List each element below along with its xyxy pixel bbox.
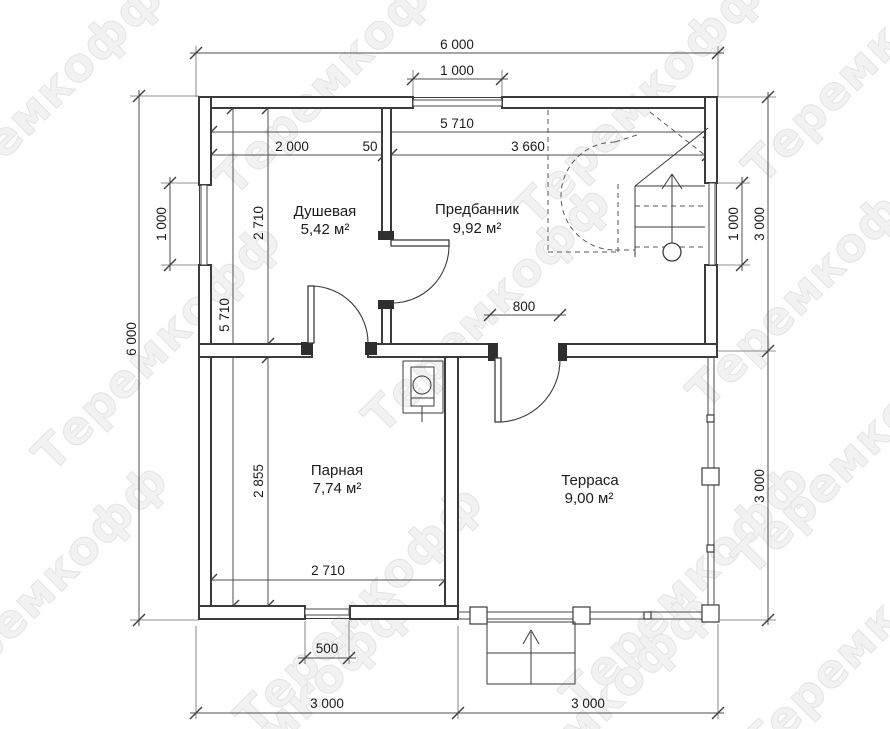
railing-baluster bbox=[644, 612, 651, 619]
room-shower-area: 5,42 м² bbox=[301, 221, 350, 238]
dim-steam-window: 500 bbox=[316, 641, 339, 656]
dim-terrace-door: 800 bbox=[513, 299, 536, 314]
dim-inner-height: 5 710 bbox=[217, 298, 232, 332]
room-hall-area: 9,92 м² bbox=[453, 220, 502, 237]
room-steam-name: Парная bbox=[311, 462, 363, 479]
dim-bottom-right: 3 000 bbox=[571, 696, 605, 711]
room-steam-area: 7,74 м² bbox=[313, 480, 362, 497]
partition-upper bbox=[382, 108, 391, 232]
window-north bbox=[413, 100, 502, 106]
room-hall-name: Предбанник bbox=[435, 201, 519, 218]
wall-east-upper bbox=[705, 97, 717, 183]
door-swing-steam bbox=[311, 286, 368, 343]
floor-plan: Теремкофф Теремкофф Теремкофф Теремкофф … bbox=[0, 0, 890, 729]
door-jamb bbox=[378, 300, 394, 309]
dim-gap: 50 bbox=[362, 139, 377, 154]
dim-right-top: 3 000 bbox=[752, 207, 767, 241]
room-terrace-name: Терраса bbox=[561, 472, 619, 489]
dim-total-height: 6 000 bbox=[124, 322, 139, 356]
wall-steam-east bbox=[445, 357, 458, 606]
door-jamb bbox=[301, 342, 313, 355]
walls bbox=[199, 97, 717, 619]
dim-steam-width: 2 710 bbox=[311, 563, 345, 578]
wall-north-left bbox=[199, 97, 413, 108]
door-jamb bbox=[558, 343, 567, 361]
window-steam-south bbox=[305, 609, 349, 615]
wall-south-right bbox=[350, 606, 458, 619]
dim-steam-height: 2 855 bbox=[251, 464, 266, 498]
room-terrace-area: 9,00 м² bbox=[565, 490, 614, 507]
door-leaf-terrace bbox=[495, 358, 501, 422]
wall-west-lower bbox=[199, 265, 211, 619]
railing-post bbox=[702, 468, 719, 485]
stairs-newel-post bbox=[663, 243, 681, 261]
dim-inner-width: 5 710 bbox=[440, 116, 474, 131]
door-leaf-steam bbox=[308, 286, 314, 343]
wall-west-upper bbox=[199, 97, 211, 185]
dim-bottom-left: 3 000 bbox=[310, 696, 344, 711]
door-swing-hall bbox=[392, 246, 449, 303]
watermark-text: Теремкофф bbox=[0, 0, 174, 239]
watermark-text: Теремкофф bbox=[0, 452, 179, 722]
dim-hall-width: 3 660 bbox=[511, 139, 545, 154]
dim-shower-height: 2 710 bbox=[251, 206, 266, 240]
watermark-text: Теремкофф bbox=[504, 0, 774, 236]
wall-middle-b bbox=[368, 344, 497, 357]
room-shower-name: Душевая bbox=[294, 203, 357, 220]
dim-window-left: 1 000 bbox=[154, 207, 169, 241]
dim-shower-width: 2 000 bbox=[275, 139, 309, 154]
railing-baluster bbox=[707, 545, 714, 552]
dim-total-width: 6 000 bbox=[440, 37, 474, 52]
window-west bbox=[201, 185, 207, 265]
wall-south-left bbox=[199, 606, 305, 619]
railing-baluster bbox=[707, 415, 714, 422]
door-swing-terrace bbox=[498, 360, 560, 422]
railing-post bbox=[573, 607, 590, 624]
dim-right-bottom: 3 000 bbox=[752, 469, 767, 503]
door-jamb bbox=[365, 342, 377, 355]
window-east bbox=[709, 183, 715, 265]
wall-north-right bbox=[502, 97, 717, 108]
door-jamb bbox=[378, 231, 394, 240]
dim-window-top: 1 000 bbox=[440, 63, 474, 78]
door-leaf-hall bbox=[391, 240, 449, 246]
wall-middle-c bbox=[563, 344, 717, 357]
railing-post bbox=[470, 607, 487, 624]
partition-lower bbox=[382, 308, 391, 344]
dim-window-right: 1 000 bbox=[726, 207, 741, 241]
railing-post-corner bbox=[702, 605, 719, 622]
wall-middle-a bbox=[199, 344, 312, 357]
